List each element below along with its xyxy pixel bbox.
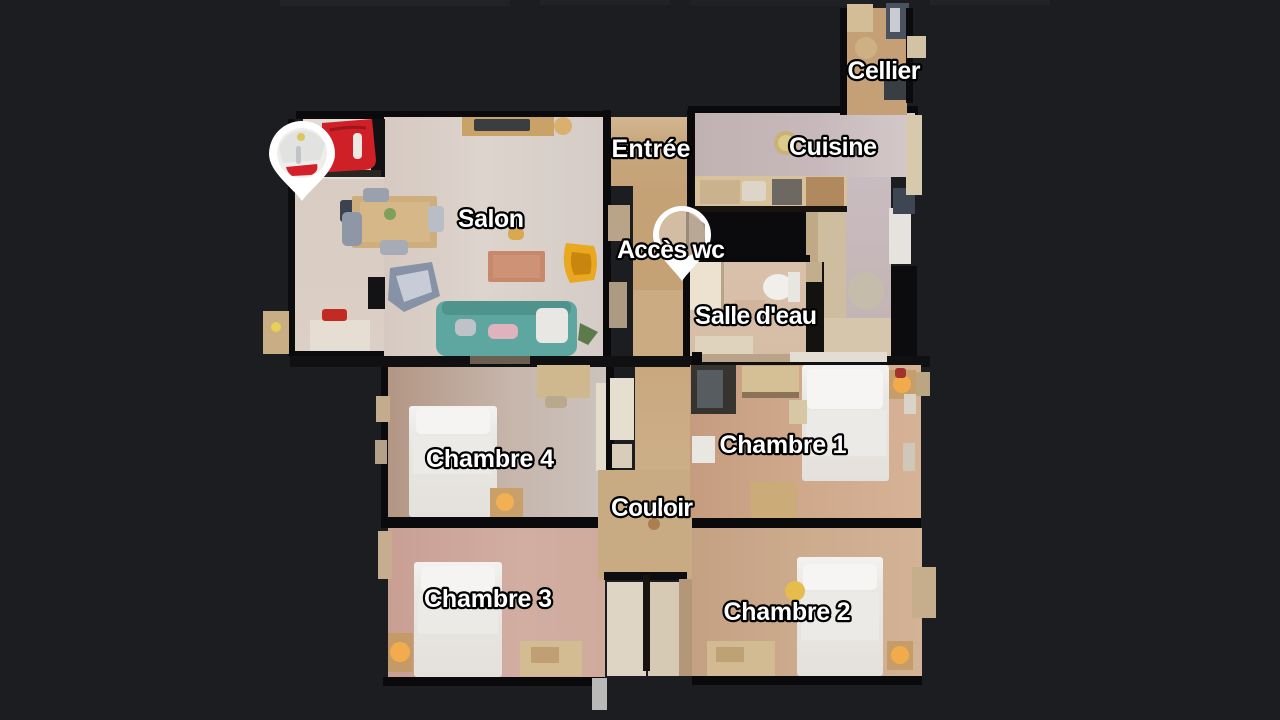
svg-text:Cellier: Cellier [848,57,921,85]
svg-text:Salle d'eau: Salle d'eau [695,302,817,330]
svg-text:Couloir: Couloir [611,494,693,522]
svg-text:Cuisine: Cuisine [789,133,877,161]
svg-text:Chambre 3: Chambre 3 [424,585,552,613]
svg-text:Entrée: Entrée [612,135,691,163]
svg-text:Chambre 2: Chambre 2 [724,598,851,626]
svg-text:Chambre 1: Chambre 1 [720,431,847,459]
svg-text:Salon: Salon [458,205,524,233]
svg-text:Accès wc: Accès wc [617,236,725,264]
svg-text:Chambre 4: Chambre 4 [426,445,554,473]
